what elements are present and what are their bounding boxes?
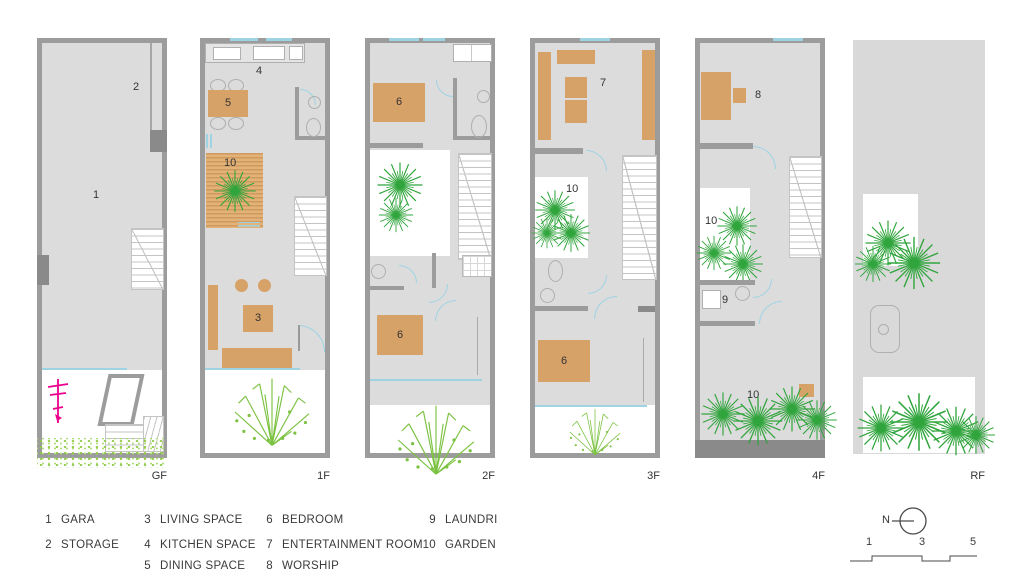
room-number-bedroom: 6 bbox=[397, 330, 403, 341]
counter-sink bbox=[253, 46, 285, 60]
legend-num: 4 bbox=[133, 539, 151, 551]
sink-icon bbox=[306, 118, 321, 137]
legend-label: KITCHEN SPACE bbox=[160, 539, 256, 551]
altar bbox=[701, 72, 731, 120]
window-line bbox=[210, 134, 212, 148]
legend-label: LIVING SPACE bbox=[160, 514, 243, 526]
legend-item: 6BEDROOM bbox=[255, 514, 344, 526]
room-number-worship: 8 bbox=[755, 90, 761, 101]
sink-icon bbox=[735, 286, 750, 301]
tree-icon bbox=[228, 372, 316, 452]
floor-label-2f: 2F bbox=[461, 470, 495, 482]
chair-icon bbox=[210, 117, 226, 130]
floor-plan-2f: 6 6 bbox=[365, 38, 495, 458]
floor-plan-1f: 4 5 10 3 bbox=[200, 38, 330, 458]
legend-num: 5 bbox=[133, 560, 151, 572]
toilet-icon bbox=[548, 260, 563, 282]
floor-plan-sheet: 2 1 4 5 bbox=[0, 0, 1024, 583]
wall-segment bbox=[150, 130, 167, 152]
room-number-gara: 1 bbox=[93, 190, 99, 201]
floor-plan-4f: 8 10 9 10 bbox=[695, 38, 825, 458]
staircase bbox=[294, 196, 327, 276]
altar-stand bbox=[733, 88, 746, 103]
legend-label: GARA bbox=[61, 514, 95, 526]
skylight-shaft bbox=[462, 255, 492, 277]
window-line bbox=[230, 38, 258, 41]
shelf bbox=[642, 50, 655, 140]
scale-tick: 3 bbox=[915, 536, 929, 548]
room-number-storage: 2 bbox=[133, 82, 139, 93]
room-number-living: 3 bbox=[255, 313, 261, 324]
grass-texture bbox=[37, 438, 167, 468]
room-number-kitchen: 4 bbox=[256, 66, 262, 77]
floor-plan-gf: 2 1 bbox=[37, 38, 167, 458]
legend-label: WORSHIP bbox=[282, 560, 339, 572]
legend-item: 8WORSHIP bbox=[255, 560, 339, 572]
kitchen-counter bbox=[205, 43, 305, 63]
sink-icon bbox=[371, 264, 386, 279]
wall-segment bbox=[700, 143, 753, 149]
window-line bbox=[580, 38, 610, 41]
water-strip bbox=[238, 222, 260, 228]
tree-icon bbox=[955, 414, 997, 456]
tree-icon bbox=[556, 408, 634, 456]
legend-item: 5DINING SPACE bbox=[133, 560, 245, 572]
legend-label: STORAGE bbox=[61, 539, 119, 551]
legend-label: GARDEN bbox=[445, 539, 496, 551]
counter-appliance bbox=[213, 47, 241, 60]
legend-item: 4KITCHEN SPACE bbox=[133, 539, 256, 551]
sofa bbox=[565, 77, 587, 98]
staircase bbox=[458, 153, 492, 260]
scale-tick: 1 bbox=[862, 536, 876, 548]
toilet-icon bbox=[471, 115, 487, 138]
threshold-line bbox=[370, 379, 482, 381]
legend-num: 2 bbox=[34, 539, 52, 551]
legend-num: 6 bbox=[255, 514, 273, 526]
legend-num: 9 bbox=[418, 514, 436, 526]
floor-label-rf: RF bbox=[951, 470, 985, 482]
tree-icon bbox=[885, 234, 943, 292]
wall-segment bbox=[370, 286, 404, 290]
wardrobe-divider bbox=[471, 45, 472, 61]
railing-line bbox=[477, 317, 478, 375]
sofa bbox=[222, 348, 292, 368]
bed: 6 bbox=[377, 315, 423, 355]
legend-item: 10GARDEN bbox=[418, 539, 496, 551]
legend-label: DINING SPACE bbox=[160, 560, 245, 572]
wardrobe bbox=[453, 44, 492, 62]
window-line bbox=[423, 38, 445, 41]
wall-segment bbox=[370, 143, 423, 148]
wall-segment bbox=[535, 148, 583, 154]
staircase bbox=[131, 228, 164, 290]
legend-num: 1 bbox=[34, 514, 52, 526]
stool-icon bbox=[235, 279, 248, 292]
floor-plan-3f: 7 10 6 bbox=[530, 38, 660, 458]
toilet-icon bbox=[308, 96, 321, 109]
bed: 6 bbox=[373, 83, 425, 122]
cabinet bbox=[557, 50, 595, 64]
railing-line bbox=[643, 338, 644, 402]
door-leaf bbox=[298, 325, 300, 351]
threshold-line bbox=[535, 405, 647, 407]
window-line bbox=[389, 38, 419, 41]
scale-tick: 5 bbox=[966, 536, 980, 548]
legend-num: 3 bbox=[133, 514, 151, 526]
living-table: 3 bbox=[243, 305, 273, 332]
legend-item: 9LAUNDRI bbox=[418, 514, 498, 526]
legend-item: 2STORAGE bbox=[34, 539, 119, 551]
legend-num: 10 bbox=[418, 539, 436, 551]
wall-segment bbox=[37, 255, 49, 285]
window-line bbox=[773, 38, 803, 41]
skylight-vent bbox=[878, 324, 889, 335]
tree-icon bbox=[550, 212, 592, 254]
tree-icon bbox=[795, 398, 839, 442]
wall-segment bbox=[453, 78, 457, 140]
wall-segment bbox=[432, 253, 436, 288]
tree-icon bbox=[212, 168, 258, 214]
stool-icon bbox=[258, 279, 271, 292]
floor-label-gf: GF bbox=[133, 470, 167, 482]
plant-icon bbox=[45, 376, 71, 426]
room-number-bedroom: 6 bbox=[396, 97, 402, 108]
wall-segment bbox=[295, 87, 299, 140]
floor-label-3f: 3F bbox=[626, 470, 660, 482]
counter-stove bbox=[289, 46, 303, 60]
wall-segment bbox=[695, 321, 755, 326]
scale-bar bbox=[850, 556, 977, 561]
room-number-laundry: 9 bbox=[722, 295, 728, 306]
legend-num: 8 bbox=[255, 560, 273, 572]
room-number-bedroom: 6 bbox=[561, 356, 567, 367]
legend-item: 1GARA bbox=[34, 514, 95, 526]
sofa bbox=[565, 100, 587, 123]
floor-label-4f: 4F bbox=[791, 470, 825, 482]
legend-item: 7ENTERTAINMENT ROOM bbox=[255, 539, 423, 551]
room-number-dining: 5 bbox=[225, 98, 231, 109]
sink-icon bbox=[477, 90, 490, 103]
tree-icon bbox=[391, 400, 481, 480]
legend-num: 7 bbox=[255, 539, 273, 551]
wall-segment bbox=[295, 136, 325, 140]
wall-segment bbox=[150, 43, 152, 130]
sink-icon bbox=[540, 288, 555, 303]
dining-table: 5 bbox=[208, 90, 248, 117]
tree-icon bbox=[377, 196, 415, 234]
bench bbox=[208, 285, 218, 350]
wall-segment bbox=[638, 306, 655, 312]
floor-label-1f: 1F bbox=[296, 470, 330, 482]
room-number-entertainment: 7 bbox=[600, 78, 606, 89]
wall-segment bbox=[453, 136, 490, 140]
window-line bbox=[206, 134, 208, 148]
floor-area bbox=[42, 43, 162, 371]
bed: 6 bbox=[538, 340, 590, 382]
legend-item: 3LIVING SPACE bbox=[133, 514, 243, 526]
chair-icon bbox=[228, 117, 244, 130]
legend-label: BEDROOM bbox=[282, 514, 344, 526]
washing-machine-icon bbox=[702, 290, 721, 309]
window-line bbox=[266, 38, 292, 41]
legend-label: LAUNDRI bbox=[445, 514, 498, 526]
staircase bbox=[789, 156, 822, 258]
legend-label: ENTERTAINMENT ROOM bbox=[282, 539, 423, 551]
wall-segment bbox=[530, 306, 588, 311]
compass-and-scale bbox=[848, 498, 998, 568]
staircase bbox=[622, 155, 657, 280]
wall-segment bbox=[695, 280, 755, 285]
floor-plan-rf bbox=[853, 38, 985, 458]
shelf bbox=[538, 52, 551, 140]
